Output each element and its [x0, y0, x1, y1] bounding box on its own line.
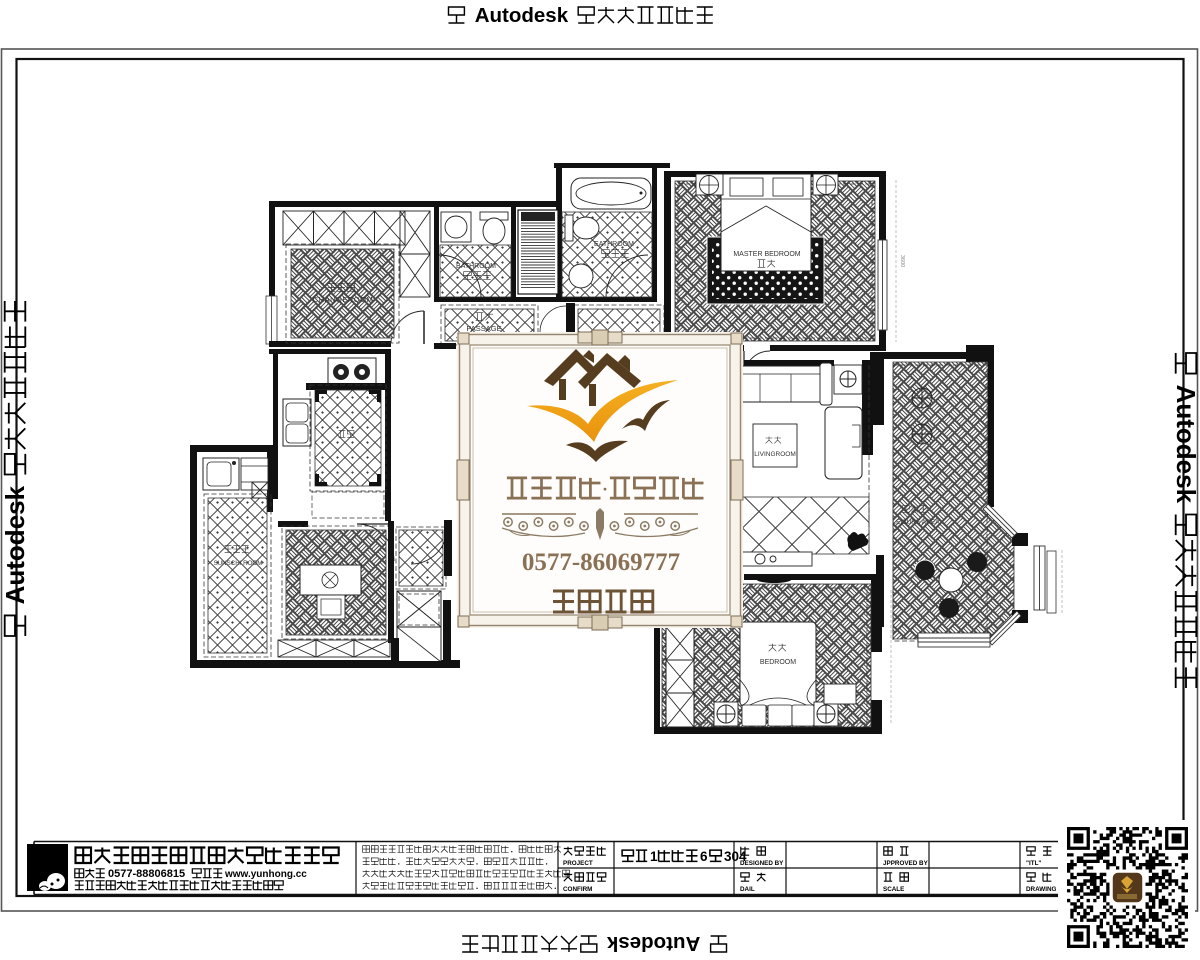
svg-text:0577-86069777: 0577-86069777	[522, 549, 680, 576]
svg-text:SUNSCHI ROOM: SUNSCHI ROOM	[214, 560, 263, 567]
svg-text:BATHROOM: BATHROOM	[456, 263, 496, 270]
svg-text:Autodesk: Autodesk	[1171, 385, 1200, 504]
svg-text:MASTER BEDROOM: MASTER BEDROOM	[733, 251, 800, 258]
svg-text:SCALE: SCALE	[883, 886, 904, 893]
svg-text:DESIGNED BY: DESIGNED BY	[740, 860, 784, 867]
svg-text:LIVINGROOM: LIVINGROOM	[754, 451, 796, 458]
svg-text:CONFIRM: CONFIRM	[563, 886, 592, 893]
svg-text:3600: 3600	[899, 255, 905, 267]
svg-text:PASSAGE: PASSAGE	[466, 324, 501, 333]
svg-text:1: 1	[650, 849, 658, 864]
svg-text:BEDROOM: BEDROOM	[760, 659, 796, 666]
svg-text:LEISURE AREA: LEISURE AREA	[893, 519, 941, 526]
svg-text:Autodesk: Autodesk	[475, 4, 569, 27]
svg-text:DAIL: DAIL	[740, 886, 755, 893]
svg-text:0577-88806815: 0577-88806815	[108, 868, 185, 880]
svg-text:CHANGEROOM: CHANGEROOM	[313, 295, 373, 304]
svg-text:"ITL": "ITL"	[1026, 860, 1041, 867]
svg-text:EATHROOM: EATHROOM	[594, 241, 634, 248]
svg-text:Autodesk: Autodesk	[0, 485, 30, 604]
svg-text:JPPROVED BY: JPPROVED BY	[883, 860, 929, 867]
svg-text:6: 6	[700, 849, 708, 864]
svg-text:Autodesk: Autodesk	[606, 932, 700, 955]
svg-text:DRAWING N: DRAWING N	[1026, 886, 1063, 893]
svg-text:www.yunhong.cc: www.yunhong.cc	[224, 869, 307, 880]
svg-text:PROJECT: PROJECT	[563, 860, 593, 867]
